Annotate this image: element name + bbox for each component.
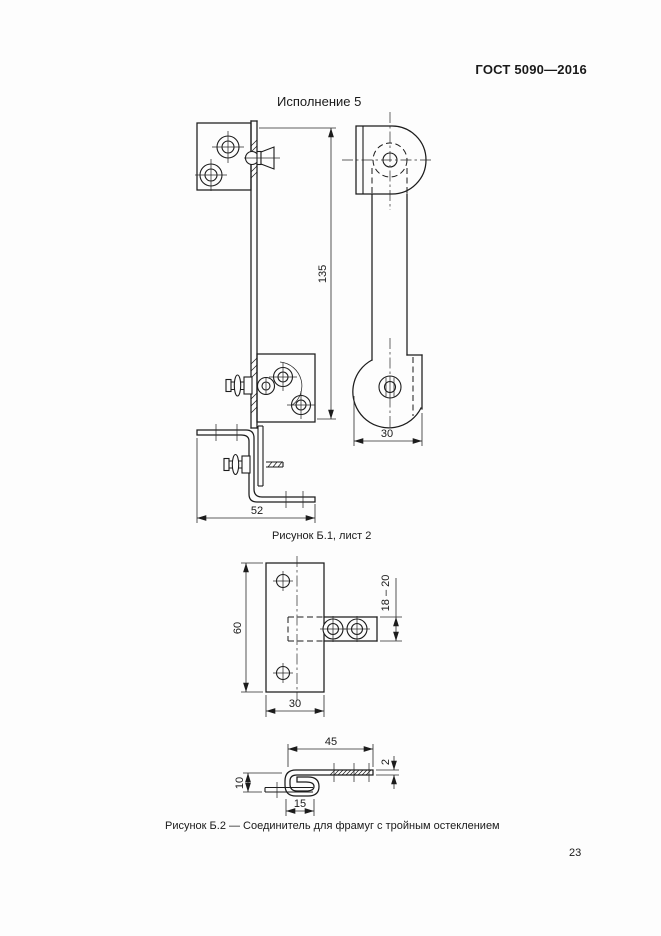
dim-15: 15 bbox=[294, 798, 306, 810]
technical-drawings: 135 bbox=[0, 0, 661, 936]
z-bracket-profile bbox=[197, 430, 315, 502]
dim-30-strap: 30 bbox=[381, 428, 393, 440]
dimension-30-strap: 30 bbox=[354, 396, 422, 446]
drawing-b1-side-view: 30 bbox=[342, 112, 434, 446]
top-mounting-plate bbox=[195, 123, 251, 191]
dimension-10: 10 bbox=[234, 773, 282, 792]
dimension-15: 15 bbox=[286, 798, 314, 816]
hole bbox=[273, 663, 293, 683]
hole bbox=[195, 159, 227, 191]
drawing-b2-profile-view: 45 2 10 15 bbox=[234, 736, 399, 816]
section-hatch bbox=[330, 763, 371, 782]
dim-135: 135 bbox=[317, 265, 329, 283]
dim-45: 45 bbox=[325, 736, 337, 748]
strap-top-head bbox=[342, 112, 434, 210]
dim-2: 2 bbox=[380, 759, 392, 765]
hole bbox=[287, 391, 315, 419]
dimension-135: 135 bbox=[259, 128, 336, 419]
dimension-30-plate: 30 bbox=[266, 695, 324, 717]
dim-60: 60 bbox=[232, 622, 244, 634]
hole bbox=[344, 616, 370, 642]
dimension-52: 52 bbox=[197, 438, 315, 523]
dim-18-20: 18 – 20 bbox=[380, 575, 392, 612]
drawing-b1-front-view: 135 bbox=[195, 121, 336, 428]
hole bbox=[212, 131, 244, 163]
strap-bottom-head bbox=[353, 338, 422, 430]
dim-30-plate: 30 bbox=[289, 698, 301, 710]
drawing-b1-bracket-view: 52 bbox=[197, 424, 315, 523]
side-tab bbox=[288, 616, 377, 642]
dim-10: 10 bbox=[234, 777, 246, 789]
wing-bolt-upper bbox=[244, 147, 280, 169]
clamped-bar-edge bbox=[258, 426, 263, 486]
dimension-2: 2 bbox=[376, 756, 399, 789]
drawing-b2-plate-view: 60 30 18 – 20 bbox=[232, 556, 402, 717]
dimension-45: 45 bbox=[288, 736, 373, 767]
bolt-section bbox=[379, 376, 401, 398]
dimension-60: 60 bbox=[232, 563, 263, 692]
standard-page: ГОСТ 5090—2016 Исполнение 5 Рисунок Б.1,… bbox=[0, 0, 661, 936]
strap-body bbox=[372, 194, 407, 360]
dim-52: 52 bbox=[251, 505, 263, 517]
dimension-18-20: 18 – 20 bbox=[380, 575, 402, 641]
hole bbox=[273, 571, 293, 591]
wing-bolt-lower bbox=[226, 375, 275, 396]
